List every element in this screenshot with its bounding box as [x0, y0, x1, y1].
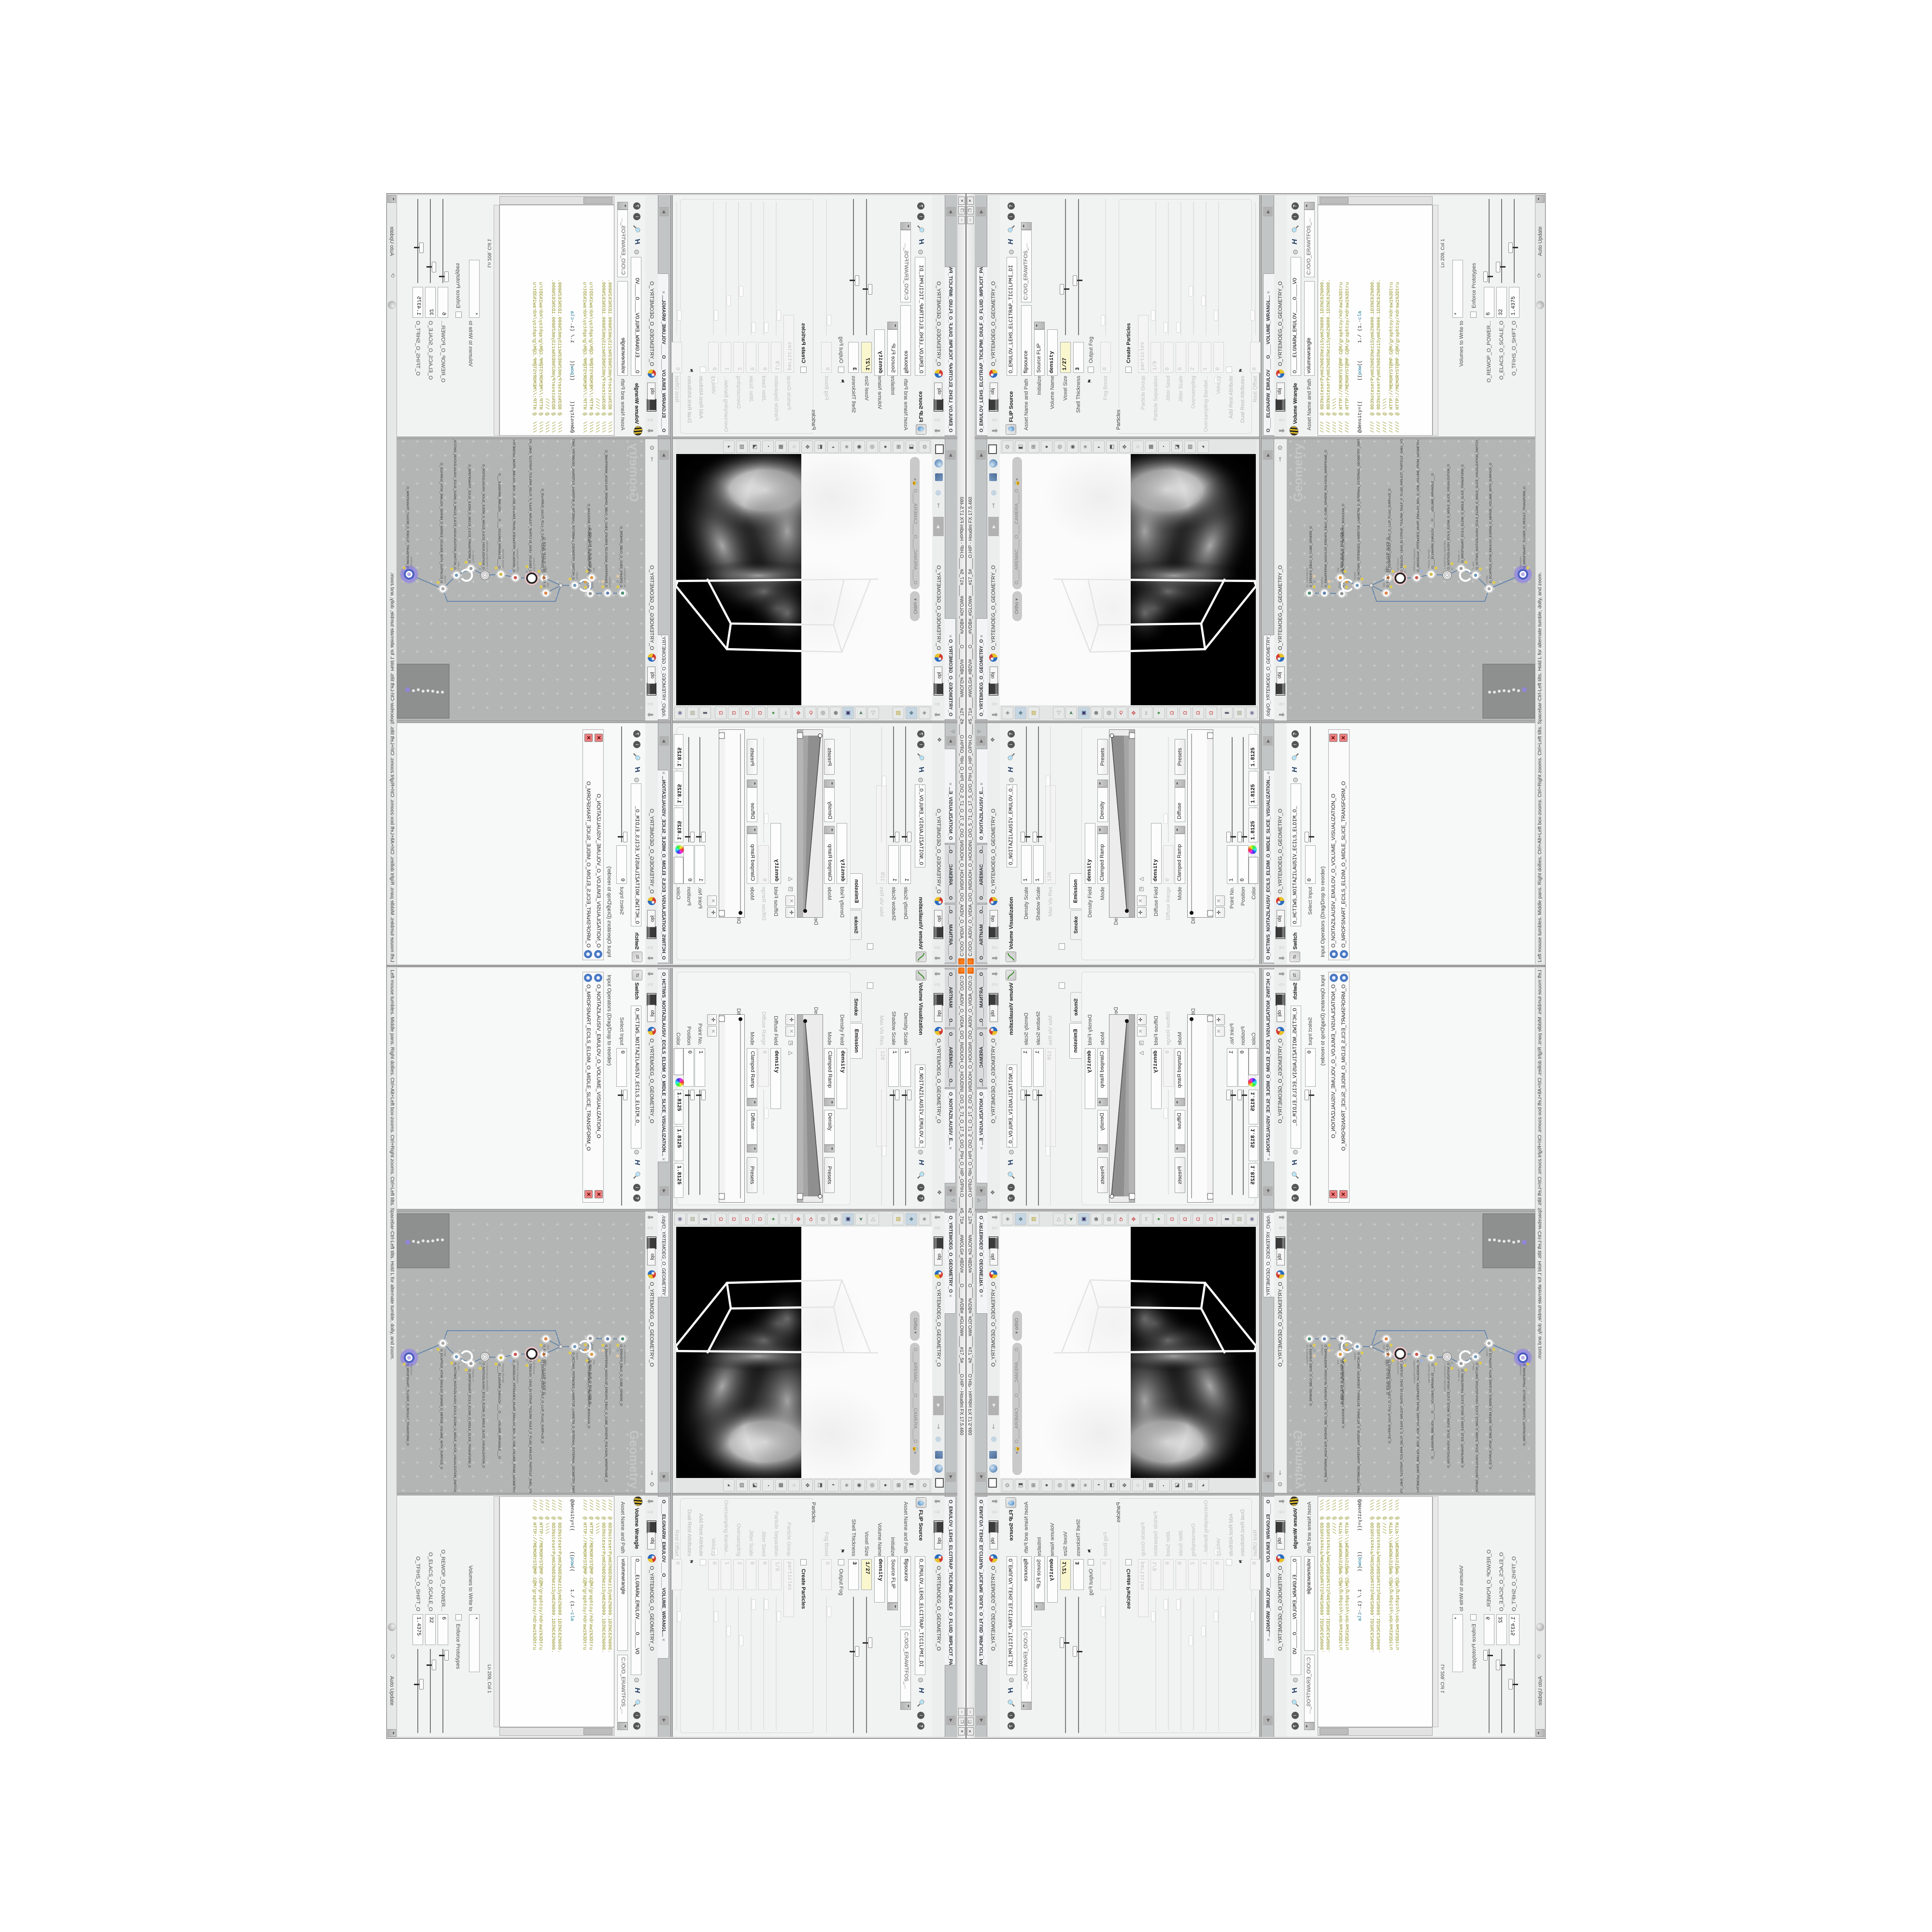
svg-text:O_EMULOV_LEHS_ELCITRAP_TICILPM: O_EMULOV_LEHS_ELCITRAP_TICILPMI_DIULF_O_… [528, 439, 532, 572]
svg-text:Transform: Transform [1520, 1364, 1522, 1376]
svg-text:O_EMULOV_LEHS_ELCITRAP_TICILPM: O_EMULOV_LEHS_ELCITRAP_TICILPMI_DIULF_O_… [528, 1360, 532, 1493]
svg-text:O_MROFSNART_ECILS_ELDIM_O_MIDL: O_MROFSNART_ECILS_ELDIM_O_MIDLE_SLICE_TR… [1461, 464, 1464, 563]
svg-text:File: File [1337, 1360, 1340, 1364]
svg-text:Geometry: Geometry [627, 1430, 641, 1489]
svg-text:an_CubeSphere: an_CubeSphere [623, 1345, 626, 1364]
svg-text:Switch: Switch [575, 572, 578, 580]
svg-text:File: File [1337, 568, 1340, 572]
svg-text:O_EREHPS_EBUC_O_CUBE_SPHERE_O: O_EREHPS_EBUC_O_CUBE_SPHERE_O [619, 1345, 623, 1406]
svg-text:O_ECILS_PILC_O_CLIP_SLICE_O: O_ECILS_PILC_O_CLIP_SLICE_O [542, 538, 546, 587]
svg-text:VDB from Polygons: VDB from Polygons [516, 549, 519, 572]
svg-text:O____ELGNARW_EMULOV____O____VO: O____ELGNARW_EMULOV____O____VOLUME_WRANG… [497, 473, 501, 568]
svg-text:O_NOITAZILAUSIV_ECILS_ELDIM_O_: O_NOITAZILAUSIV_ECILS_ELDIM_O_MIDLE_SLIC… [482, 464, 485, 569]
svg-text:O_EMARFERIW_NOGYLOP_EREHPS_EBU: O_EMARFERIW_NOGYLOP_EREHPS_EBUC_O_CUBE_S… [604, 1345, 608, 1482]
svg-text:Switch: Switch [1472, 562, 1475, 569]
svg-text:O_EREHPS_EBUC_O_CUBE_SPHERE_O: O_EREHPS_EBUC_O_CUBE_SPHERE_O [619, 526, 623, 587]
svg-text:Switch: Switch [1354, 572, 1357, 580]
svg-text:Switch: Switch [1472, 1363, 1475, 1370]
svg-text:FLIP Source: FLIP Source [532, 1360, 535, 1374]
svg-text:O_EMARFERIW_NOGYLOP_EREHPS_EBU: O_EMARFERIW_NOGYLOP_EREHPS_EBUC_O_CUBE_S… [1324, 450, 1328, 587]
svg-text:O_SNOGILOP_YRTEMOEG_MORF_EMULO: O_SNOGILOP_YRTEMOEG_MORF_EMULOV_BDV_O_VD… [1417, 1360, 1420, 1493]
svg-text:O_HCTIWS_YRTEMOEG_LANRETXE_LAN: O_HCTIWS_YRTEMOEG_LANRETXE_LANRETNI_O_IN… [1357, 439, 1361, 580]
svg-text:PolyWire: PolyWire [1321, 577, 1324, 587]
svg-text:File: File [592, 1360, 595, 1364]
svg-text:Geometry: Geometry [1291, 1430, 1305, 1489]
svg-text:O_NOITAZILAUSIV_ECILS_ELDIM_O_: O_NOITAZILAUSIV_ECILS_ELDIM_O_MIDLE_SLIC… [1447, 464, 1450, 569]
svg-text:VolumeVisualizationSlice: VolumeVisualizationSlice [1444, 1363, 1447, 1392]
svg-text:O_HCTIWS_YRTEMOEG_LANRETXE_LAN: O_HCTIWS_YRTEMOEG_LANRETXE_LANRETNI_O_IN… [1357, 1352, 1361, 1493]
svg-text:Switch: Switch [457, 1363, 460, 1370]
svg-text:O_BDV_ELIF_O_FILE_VDB_O: O_BDV_ELIF_O_FILE_VDB_O [1340, 1360, 1344, 1404]
svg-text:O_EREHPS_EBUC_O_CUBE_SPHERE_O: O_EREHPS_EBUC_O_CUBE_SPHERE_O [1309, 1345, 1313, 1406]
svg-text:O_EMARFERIW_NOGYLOP_EREHPS_EBU: O_EMARFERIW_NOGYLOP_EREHPS_EBUC_O_CUBE_S… [1324, 1345, 1328, 1482]
svg-text:O_SNOGILOP_YRTEMOEG_MORF_EMULO: O_SNOGILOP_YRTEMOEG_MORF_EMULOV_BDV_O_VD… [1417, 439, 1420, 572]
svg-text:VDB from Polygons: VDB from Polygons [1413, 549, 1416, 572]
svg-text:O____ELGNARW_EMULOV____O____VO: O____ELGNARW_EMULOV____O____VOLUME_WRANG… [497, 1364, 501, 1459]
svg-text:O_ECAFRUS_HTIW_EMULOV_EGREM_O_: O_ECAFRUS_HTIW_EMULOV_EGREM_O_MERGE_VOLU… [440, 463, 443, 583]
svg-text:Transform: Transform [410, 1364, 412, 1376]
svg-text:Clip: Clip [1383, 1345, 1386, 1349]
svg-text:Switch: Switch [457, 562, 460, 569]
svg-text:PolyWire: PolyWire [608, 1345, 611, 1355]
svg-text:Geometry: Geometry [1291, 443, 1305, 502]
svg-text:FLIP Source: FLIP Source [532, 558, 535, 572]
svg-text:O_EMARFERIW_NOGYLOP_EREHPS_EBU: O_EMARFERIW_NOGYLOP_EREHPS_EBUC_O_CUBE_S… [604, 450, 608, 587]
svg-text:an_CubeSphere: an_CubeSphere [623, 568, 626, 587]
svg-text:an_CubeSphere: an_CubeSphere [1306, 1345, 1309, 1364]
svg-text:Switch: Switch [1354, 1352, 1357, 1360]
svg-text:O_MROFSNART_TLUSER_O_RESULT_TR: O_MROFSNART_TLUSER_O_RESULT_TRANSFORM_O [406, 1364, 409, 1446]
svg-text:O_EREHPS_EBUC_O_CUBE_SPHERE_O: O_EREHPS_EBUC_O_CUBE_SPHERE_O [1309, 526, 1313, 587]
svg-text:O____ELGNARW_EMULOV____O____VO: O____ELGNARW_EMULOV____O____VOLUME_WRANG… [1431, 473, 1435, 568]
svg-text:O_BDV_ELIF_O_FILE_VDB_O: O_BDV_ELIF_O_FILE_VDB_O [588, 1360, 592, 1404]
svg-text:O_SNOGILOP_YRTEMOEG_MORF_EMULO: O_SNOGILOP_YRTEMOEG_MORF_EMULOV_BDV_O_VD… [512, 1360, 515, 1493]
svg-text:VDB from Polygons: VDB from Polygons [516, 1360, 519, 1383]
svg-text:Volume Wrangle: Volume Wrangle [501, 1364, 504, 1383]
svg-text:O_ECAFRUS_HTIW_EMULOV_EGREM_O_: O_ECAFRUS_HTIW_EMULOV_EGREM_O_MERGE_VOLU… [1489, 463, 1492, 583]
svg-text:PolyWire: PolyWire [1321, 1345, 1324, 1355]
svg-text:O_HCTIWS_NOITAZILAUSIV_ECILS_E: O_HCTIWS_NOITAZILAUSIV_ECILS_ELDIM_O_MID… [453, 1363, 456, 1493]
svg-text:O_HCTIWS_YRTEMOEG_LANRETXE_LAN: O_HCTIWS_YRTEMOEG_LANRETXE_LANRETNI_O_IN… [571, 1352, 575, 1493]
svg-text:O_ECAFRUS_HTIW_EMULOV_EGREM_O_: O_ECAFRUS_HTIW_EMULOV_EGREM_O_MERGE_VOLU… [1489, 1349, 1492, 1469]
svg-text:File: File [592, 568, 595, 572]
svg-text:O_MROFSNART_TLUSER_O_RESULT_TR: O_MROFSNART_TLUSER_O_RESULT_TRANSFORM_O [406, 486, 409, 568]
svg-text:Volume Wrangle: Volume Wrangle [1428, 1364, 1431, 1383]
svg-text:Merge: Merge [443, 575, 446, 583]
svg-text:Switch: Switch [575, 1352, 578, 1360]
svg-text:FLIP Source: FLIP Source [1397, 558, 1400, 572]
svg-text:O_MROFSNART_TLUSER_O_RESULT_TR: O_MROFSNART_TLUSER_O_RESULT_TRANSFORM_O [1523, 1364, 1526, 1446]
svg-text:O_HCTIWS_YRTEMOEG_LANRETXE_LAN: O_HCTIWS_YRTEMOEG_LANRETXE_LANRETNI_O_IN… [571, 439, 575, 580]
svg-text:Geometry: Geometry [627, 443, 641, 502]
svg-text:Clip: Clip [546, 583, 549, 587]
svg-text:O_HCTIWS_NOITAZILAUSIV_ECILS_E: O_HCTIWS_NOITAZILAUSIV_ECILS_ELDIM_O_MID… [453, 439, 456, 569]
svg-text:VDB from Polygons: VDB from Polygons [1413, 1360, 1416, 1383]
svg-text:Clip: Clip [1383, 583, 1386, 587]
svg-text:O_SNOGILOP_YRTEMOEG_MORF_EMULO: O_SNOGILOP_YRTEMOEG_MORF_EMULOV_BDV_O_VD… [512, 439, 515, 572]
svg-text:PolyWire: PolyWire [608, 577, 611, 587]
svg-text:O_MROFSNART_ECILS_ELDIM_O_MIDL: O_MROFSNART_ECILS_ELDIM_O_MIDLE_SLICE_TR… [1461, 1369, 1464, 1468]
svg-text:Merge: Merge [1486, 575, 1489, 583]
svg-text:Transform: Transform [471, 1369, 474, 1381]
svg-text:Merge: Merge [443, 1349, 446, 1357]
svg-text:O_ECILS_PILC_O_CLIP_SLICE_O: O_ECILS_PILC_O_CLIP_SLICE_O [1386, 1345, 1390, 1394]
svg-text:O_ECILS_PILC_O_CLIP_SLICE_O: O_ECILS_PILC_O_CLIP_SLICE_O [542, 1345, 546, 1394]
svg-text:Transform: Transform [1520, 556, 1522, 568]
svg-text:O_NOITAZILAUSIV_ECILS_ELDIM_O_: O_NOITAZILAUSIV_ECILS_ELDIM_O_MIDLE_SLIC… [482, 1363, 485, 1468]
svg-text:Merge: Merge [1486, 1349, 1489, 1357]
svg-text:Transform: Transform [471, 551, 474, 563]
svg-text:O_MROFSNART_TLUSER_O_RESULT_TR: O_MROFSNART_TLUSER_O_RESULT_TRANSFORM_O [1523, 486, 1526, 568]
svg-text:VolumeVisualizationSlice: VolumeVisualizationSlice [1444, 540, 1447, 569]
svg-text:Transform: Transform [1458, 1369, 1461, 1381]
svg-text:Clip: Clip [546, 1345, 549, 1349]
svg-text:Volume Wrangle: Volume Wrangle [1428, 549, 1431, 568]
svg-text:Transform: Transform [410, 556, 412, 568]
svg-text:O_BDV_ELIF_O_FILE_VDB_O: O_BDV_ELIF_O_FILE_VDB_O [588, 528, 592, 572]
svg-text:Transform: Transform [1458, 551, 1461, 563]
svg-text:VolumeVisualizationSlice: VolumeVisualizationSlice [485, 540, 488, 569]
svg-text:FLIP Source: FLIP Source [1397, 1360, 1400, 1374]
svg-text:O_ECAFRUS_HTIW_EMULOV_EGREM_O_: O_ECAFRUS_HTIW_EMULOV_EGREM_O_MERGE_VOLU… [440, 1349, 443, 1469]
svg-text:VolumeVisualizationSlice: VolumeVisualizationSlice [485, 1363, 488, 1392]
svg-text:O____ELGNARW_EMULOV____O____VO: O____ELGNARW_EMULOV____O____VOLUME_WRANG… [1431, 1364, 1435, 1459]
svg-text:O_MROFSNART_ECILS_ELDIM_O_MIDL: O_MROFSNART_ECILS_ELDIM_O_MIDLE_SLICE_TR… [468, 464, 471, 563]
svg-text:an_CubeSphere: an_CubeSphere [1306, 568, 1309, 587]
svg-text:O_EMULOV_LEHS_ELCITRAP_TICILPM: O_EMULOV_LEHS_ELCITRAP_TICILPMI_DIULF_O_… [1400, 439, 1404, 572]
svg-text:Volume Wrangle: Volume Wrangle [501, 549, 504, 568]
svg-text:O_MROFSNART_ECILS_ELDIM_O_MIDL: O_MROFSNART_ECILS_ELDIM_O_MIDLE_SLICE_TR… [468, 1369, 471, 1468]
svg-text:O_ECILS_PILC_O_CLIP_SLICE_O: O_ECILS_PILC_O_CLIP_SLICE_O [1386, 538, 1390, 587]
svg-text:O_BDV_ELIF_O_FILE_VDB_O: O_BDV_ELIF_O_FILE_VDB_O [1340, 528, 1344, 572]
svg-text:O_HCTIWS_NOITAZILAUSIV_ECILS_E: O_HCTIWS_NOITAZILAUSIV_ECILS_ELDIM_O_MID… [1476, 439, 1479, 569]
svg-text:O_EMULOV_LEHS_ELCITRAP_TICILPM: O_EMULOV_LEHS_ELCITRAP_TICILPMI_DIULF_O_… [1400, 1360, 1404, 1493]
svg-text:O_NOITAZILAUSIV_ECILS_ELDIM_O_: O_NOITAZILAUSIV_ECILS_ELDIM_O_MIDLE_SLIC… [1447, 1363, 1450, 1468]
svg-text:O_HCTIWS_NOITAZILAUSIV_ECILS_E: O_HCTIWS_NOITAZILAUSIV_ECILS_ELDIM_O_MID… [1476, 1363, 1479, 1493]
